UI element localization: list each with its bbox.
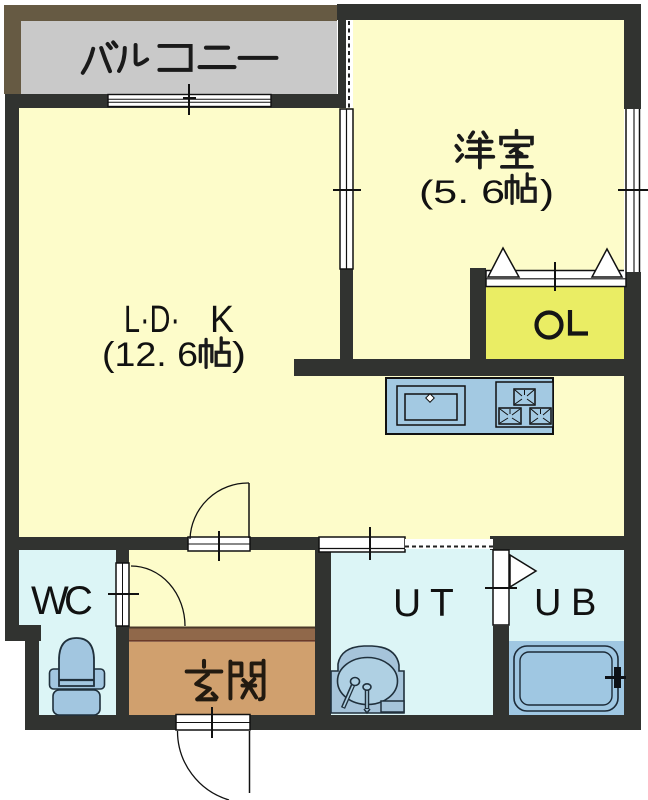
- svg-text:C: C: [64, 579, 93, 623]
- svg-text:(12. 6: (12. 6: [102, 336, 198, 374]
- svg-text:(5. 6: (5. 6: [419, 174, 505, 210]
- svg-text:U: U: [534, 582, 561, 624]
- svg-text:): ): [540, 174, 554, 212]
- svg-text:T: T: [430, 582, 454, 625]
- svg-text:K: K: [210, 299, 234, 341]
- svg-text:): ): [232, 336, 246, 374]
- svg-text:L·D·: L·D·: [124, 299, 180, 341]
- svg-text:B: B: [571, 582, 596, 624]
- svg-text:U: U: [393, 582, 421, 625]
